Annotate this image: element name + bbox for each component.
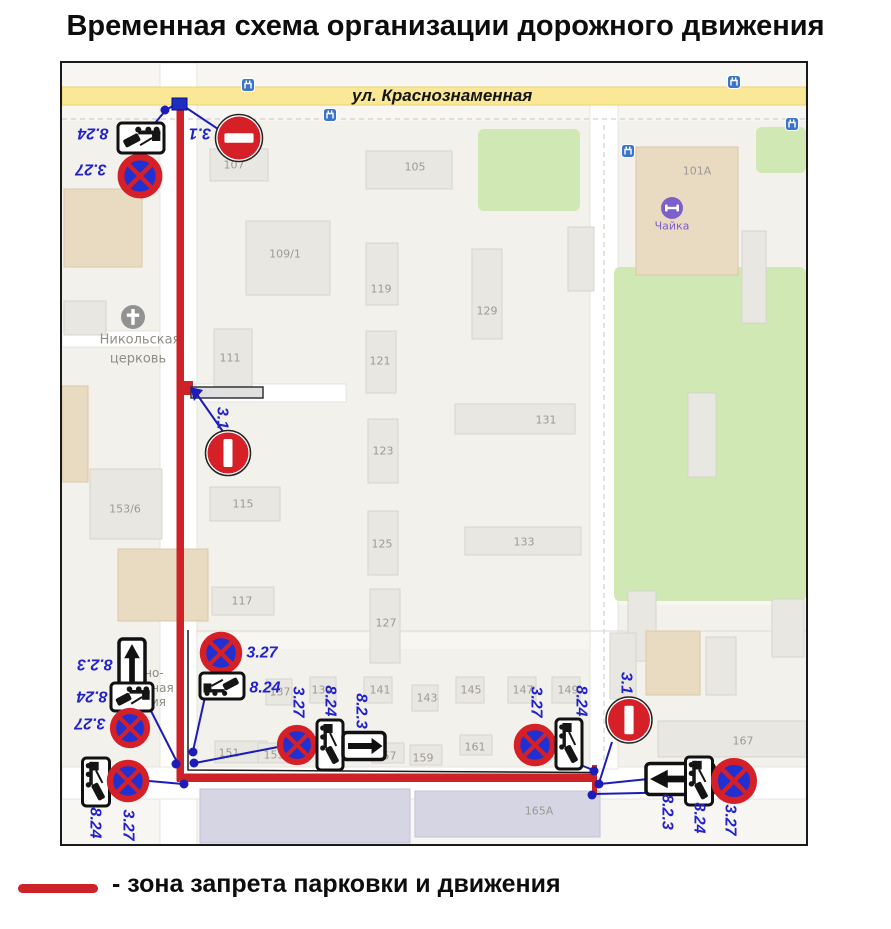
map-canvas: 107105101А109/11191291111211311231151251… <box>60 61 808 846</box>
building-label: Чайка <box>655 220 690 233</box>
tow-truck-wheel <box>136 686 142 692</box>
gym-dumbbell-icon <box>665 205 668 212</box>
legend-text: - зона запрета парковки и движения <box>112 870 561 899</box>
sign-code-label: 3.1 <box>618 672 635 694</box>
sign-code-label: 3.27 <box>120 809 137 841</box>
building <box>472 249 502 339</box>
legend-zone-line-swatch <box>18 884 98 893</box>
tow-truck-wheel <box>222 691 227 696</box>
building-label: 109/1 <box>269 248 301 261</box>
building <box>706 637 736 695</box>
sign-code-label: 3.27 <box>246 645 278 662</box>
building-label: 119 <box>371 283 392 296</box>
building-label: 161 <box>465 741 486 754</box>
building-label: 143 <box>417 692 438 705</box>
building <box>568 227 594 291</box>
sign-code-label: 8.24 <box>691 802 708 833</box>
building-label: 131 <box>536 414 557 427</box>
building-label: 141 <box>370 684 391 697</box>
tow-truck-wheel <box>86 763 91 768</box>
tow-truck-sign <box>200 673 244 699</box>
no-entry-bar <box>224 133 253 142</box>
tow-truck-wheel <box>127 686 133 692</box>
anchor-dot <box>161 106 170 115</box>
anchor-dot <box>180 780 189 789</box>
building <box>742 231 766 323</box>
no-entry-bar <box>624 706 633 735</box>
legend: - зона запрета парковки и движения <box>0 862 891 922</box>
tow-truck-wheel <box>689 771 694 776</box>
building-label: 159 <box>413 752 434 765</box>
sign-code-label: 8.2.3 <box>659 794 676 830</box>
building <box>646 631 700 695</box>
tow-truck-wheel <box>154 127 160 133</box>
sign-code-label: 8.24 <box>87 807 104 838</box>
map-drawing: 107105101А109/11191291111211311231151251… <box>62 63 806 844</box>
building-label: 111 <box>220 352 241 365</box>
green-area <box>478 129 580 211</box>
building <box>366 243 398 305</box>
tow-truck-wheel <box>559 744 564 749</box>
street-name-label: ул. Краснознаменная <box>352 86 612 106</box>
road-barrier <box>191 387 263 398</box>
sign-code-label: 8.24 <box>76 688 107 705</box>
tow-truck-sign <box>83 758 110 806</box>
zone-line-horizontal <box>177 774 596 783</box>
tow-truck-wheel <box>320 725 325 730</box>
building-label: Никольская <box>100 333 181 348</box>
anchor-dot <box>189 748 198 757</box>
building <box>415 791 600 837</box>
building <box>118 549 208 621</box>
tow-truck-wheel <box>559 724 564 729</box>
building <box>62 386 88 482</box>
page: { "title": "Временная схема организации … <box>0 0 891 929</box>
page-title: Временная схема организации дорожного дв… <box>0 10 891 43</box>
anchor-dot <box>590 767 599 776</box>
sign-code-label: 3.1 <box>189 125 211 142</box>
sign-code-label: 8.24 <box>249 680 280 697</box>
tow-truck-wheel <box>212 691 217 696</box>
building-label: 105 <box>405 161 426 174</box>
building-label: 145 <box>461 684 482 697</box>
green-area <box>756 127 806 173</box>
tow-truck-wheel <box>320 734 325 739</box>
tow-truck-sign <box>118 123 164 153</box>
sign-code-label: 8.24 <box>573 685 590 716</box>
anchor-square <box>172 98 187 110</box>
sign-code-label: 3.27 <box>528 686 545 718</box>
bus-stop-icon <box>242 79 255 92</box>
building-label: 121 <box>370 355 391 368</box>
building-label: 167 <box>733 735 754 748</box>
no-entry-bar <box>224 439 233 467</box>
tow-truck-wheel <box>86 772 91 777</box>
tow-truck-sign <box>686 757 713 805</box>
sign-code-label: 3.27 <box>74 161 106 178</box>
bus-stop-icon <box>786 118 799 131</box>
sign-code-label: 8.24 <box>77 125 108 142</box>
sign-code-label: 8.24 <box>322 685 339 716</box>
sign-code-label: 3.27 <box>722 804 739 836</box>
building-label: 125 <box>372 538 393 551</box>
tow-truck-wheel <box>145 127 151 133</box>
building <box>455 404 575 434</box>
building-label: 101А <box>683 165 712 178</box>
tow-truck-wheel <box>559 733 564 738</box>
anchor-dot <box>588 791 597 800</box>
building-label: 123 <box>373 445 394 458</box>
tow-truck-wheel <box>204 691 209 696</box>
building-label: 127 <box>376 617 397 630</box>
tow-truck-wheel <box>143 686 149 692</box>
sign-code-label: 8.2.3 <box>353 693 370 729</box>
tow-truck-wheel <box>135 127 141 133</box>
anchor-dot <box>595 780 604 789</box>
bus-stop-icon <box>324 109 337 122</box>
tow-truck-sign <box>111 683 153 711</box>
building-label: 117 <box>232 595 253 608</box>
bus-stop-icon <box>728 76 741 89</box>
sign-code-label: 3.27 <box>290 686 307 718</box>
tow-truck-sign <box>317 720 343 770</box>
tow-truck-wheel <box>689 781 694 786</box>
building <box>64 189 142 267</box>
sign-code-label: 8.2.3 <box>77 656 113 673</box>
tow-truck-wheel <box>689 762 694 767</box>
gym-dumbbell-icon <box>666 207 678 209</box>
building <box>688 393 716 477</box>
sign-code-label: 3.1 <box>214 407 231 429</box>
tow-truck-wheel <box>320 745 325 750</box>
building <box>772 599 804 657</box>
building-label: церковь <box>110 352 166 367</box>
building-label: 165А <box>525 805 554 818</box>
bus-stop-icon <box>622 145 635 158</box>
building-label: 115 <box>233 498 254 511</box>
anchor-dot <box>190 759 199 768</box>
sign-code-label: 3.27 <box>73 715 105 732</box>
building-label: 129 <box>477 305 498 318</box>
gym-dumbbell-icon <box>676 205 679 212</box>
building-label: 133 <box>514 536 535 549</box>
zone-line-vertical <box>177 105 185 781</box>
building <box>64 301 106 335</box>
tow-truck-wheel <box>86 782 91 787</box>
anchor-dot <box>172 760 181 769</box>
tow-truck-sign <box>556 719 582 769</box>
building <box>200 789 410 843</box>
building-label: 153/6 <box>109 503 141 516</box>
